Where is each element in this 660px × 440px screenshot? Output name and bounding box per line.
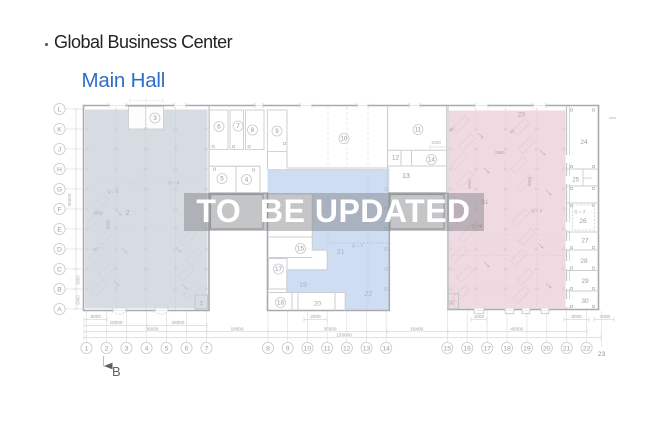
svg-text:14: 14 — [428, 157, 435, 164]
svg-text:15: 15 — [297, 246, 304, 253]
svg-text:18400: 18400 — [410, 327, 423, 332]
svg-text:1: 1 — [200, 301, 203, 307]
svg-text:20: 20 — [314, 301, 321, 308]
svg-text:12: 12 — [343, 345, 351, 352]
svg-text:15: 15 — [444, 345, 452, 352]
svg-text:18000: 18000 — [110, 320, 123, 325]
svg-text:18: 18 — [277, 300, 284, 307]
svg-text:16: 16 — [463, 345, 471, 352]
svg-text:E: E — [57, 226, 62, 233]
svg-text:C: C — [57, 266, 62, 273]
svg-text:G: G — [57, 186, 62, 193]
svg-text:19: 19 — [299, 282, 307, 289]
svg-text:6000: 6000 — [571, 314, 582, 319]
svg-text:30: 30 — [581, 298, 589, 305]
svg-text:18000: 18000 — [172, 320, 185, 325]
svg-text:40000: 40000 — [67, 193, 72, 206]
svg-text:1000: 1000 — [431, 140, 441, 145]
svg-text:6: 6 — [185, 345, 189, 352]
svg-text:23: 23 — [518, 112, 526, 119]
svg-text:1900: 1900 — [495, 150, 505, 155]
svg-text:21: 21 — [563, 345, 571, 352]
svg-text:6000: 6000 — [527, 176, 532, 186]
svg-text:7: 7 — [236, 123, 240, 130]
svg-text:26: 26 — [579, 218, 587, 225]
svg-text:18: 18 — [503, 345, 511, 352]
svg-text:3000: 3000 — [600, 314, 611, 319]
svg-text:L: L — [58, 106, 62, 113]
svg-text:4: 4 — [245, 177, 249, 184]
svg-text:1: 1 — [85, 345, 89, 352]
svg-text:25: 25 — [572, 178, 579, 184]
svg-text:B: B — [57, 286, 62, 293]
svg-text:3: 3 — [153, 115, 157, 122]
svg-text:5: 5 — [220, 176, 224, 183]
svg-text:20: 20 — [543, 345, 551, 352]
svg-text:22: 22 — [583, 345, 591, 352]
svg-text:23: 23 — [598, 351, 606, 358]
svg-text:18000: 18000 — [231, 327, 244, 332]
svg-text:3: 3 — [125, 345, 129, 352]
svg-text:J: J — [58, 146, 61, 153]
svg-text:10: 10 — [341, 136, 348, 143]
svg-text:22: 22 — [365, 291, 373, 298]
svg-text:10: 10 — [304, 345, 312, 352]
svg-text:36000: 36000 — [146, 327, 159, 332]
svg-text:21: 21 — [337, 249, 345, 256]
svg-text:28: 28 — [580, 258, 588, 265]
svg-text:153000: 153000 — [336, 333, 352, 338]
svg-text:32: 32 — [449, 301, 455, 307]
svg-text:Q = 3: Q = 3 — [168, 180, 180, 185]
svg-text:8: 8 — [251, 127, 255, 134]
svg-text:Q = 3: Q = 3 — [574, 209, 586, 214]
svg-text:K: K — [57, 126, 62, 133]
svg-text:9: 9 — [286, 345, 290, 352]
svg-text:B: B — [112, 364, 121, 379]
svg-text:2: 2 — [105, 345, 109, 352]
svg-text:Q = 3: Q = 3 — [107, 189, 119, 194]
svg-text:F: F — [57, 206, 61, 213]
svg-text:27: 27 — [581, 238, 589, 245]
svg-text:11: 11 — [324, 345, 331, 352]
svg-text:6000: 6000 — [91, 314, 102, 319]
svg-text:29: 29 — [581, 278, 589, 285]
svg-text:5000: 5000 — [106, 219, 111, 229]
svg-text:6000: 6000 — [467, 179, 472, 189]
svg-text:2000: 2000 — [93, 211, 103, 216]
svg-text:4: 4 — [145, 345, 149, 352]
svg-text:Q = 3: Q = 3 — [352, 243, 364, 248]
svg-text:13: 13 — [402, 173, 410, 180]
svg-text:5: 5 — [165, 345, 169, 352]
svg-text:14: 14 — [382, 345, 390, 352]
svg-text:2000: 2000 — [310, 314, 321, 319]
svg-text:17: 17 — [275, 266, 282, 273]
svg-text:12: 12 — [392, 155, 400, 162]
svg-text:11: 11 — [415, 127, 422, 134]
svg-text:D: D — [57, 246, 62, 253]
svg-text:6000: 6000 — [76, 295, 81, 305]
svg-text:H: H — [57, 166, 62, 173]
svg-text:24: 24 — [580, 139, 588, 146]
svg-text:Q = 3: Q = 3 — [531, 208, 543, 213]
svg-text:19: 19 — [523, 345, 531, 352]
svg-text:9: 9 — [275, 128, 279, 135]
svg-text:7: 7 — [205, 345, 209, 352]
svg-text:6000: 6000 — [76, 275, 81, 285]
svg-text:6: 6 — [217, 124, 221, 131]
svg-text:13: 13 — [363, 345, 371, 352]
svg-text:17: 17 — [483, 345, 491, 352]
svg-text:36000: 36000 — [324, 327, 337, 332]
svg-text:A: A — [57, 306, 62, 313]
svg-text:45000: 45000 — [510, 327, 523, 332]
svg-text:1000: 1000 — [474, 314, 485, 319]
svg-text:8: 8 — [266, 345, 270, 352]
